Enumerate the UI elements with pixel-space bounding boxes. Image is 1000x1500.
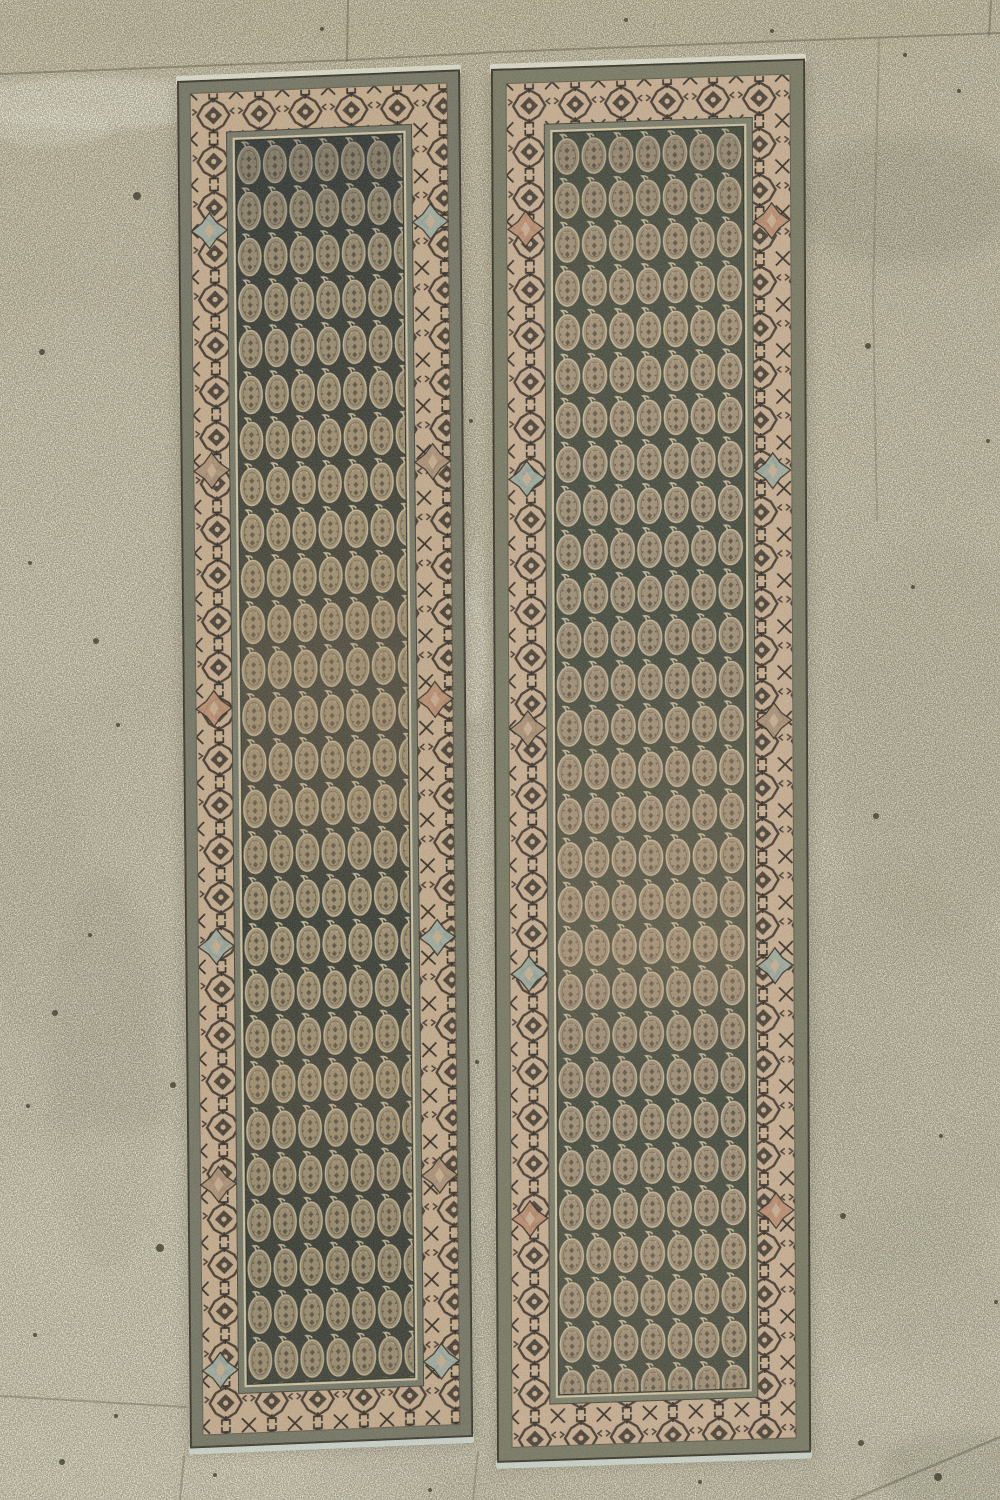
photograph-two-runner-rugs bbox=[0, 0, 1000, 1500]
scene-svg bbox=[0, 0, 1000, 1500]
photo-grain-overlay bbox=[0, 0, 1000, 1500]
